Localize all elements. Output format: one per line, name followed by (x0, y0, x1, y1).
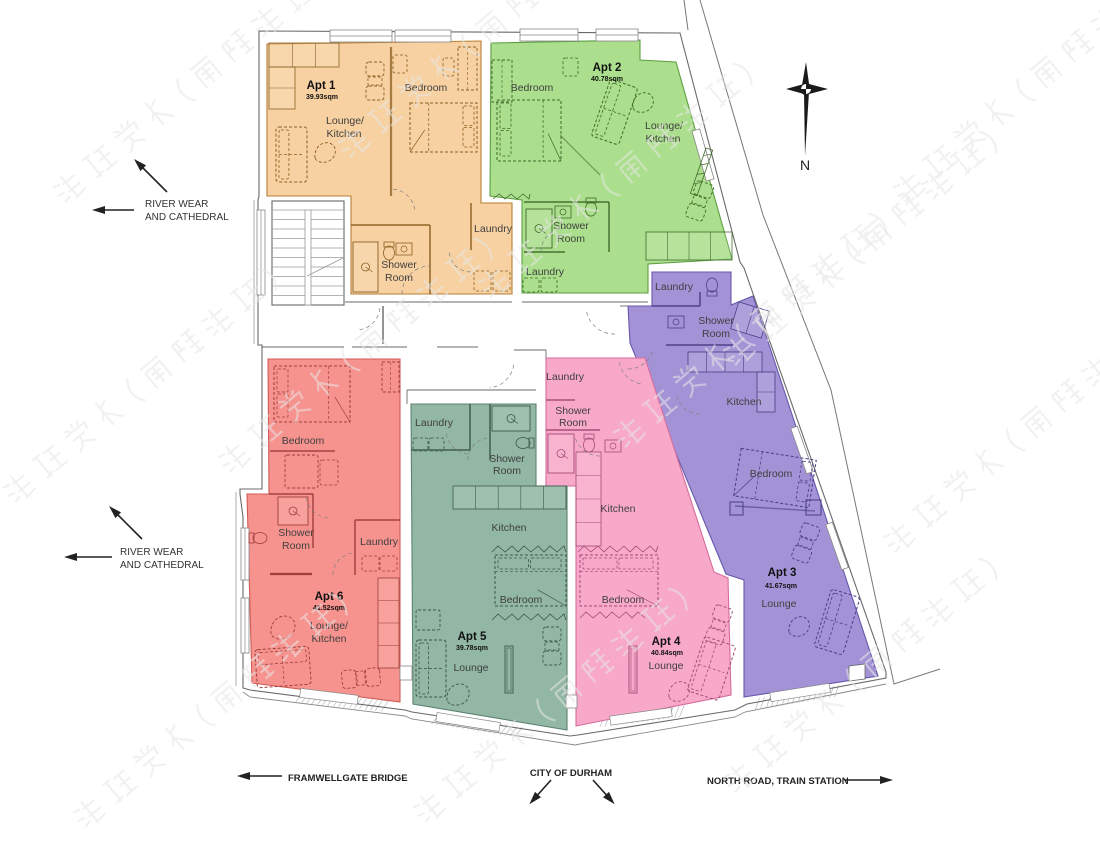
svg-text:Laundry: Laundry (546, 371, 585, 383)
svg-text:Shower: Shower (698, 315, 734, 327)
svg-text:AND CATHEDRAL: AND CATHEDRAL (145, 212, 229, 223)
svg-text:Bedroom: Bedroom (602, 594, 645, 606)
svg-text:Bedroom: Bedroom (511, 82, 554, 94)
svg-text:CITY OF DURHAM: CITY OF DURHAM (530, 768, 612, 779)
svg-text:Bedroom: Bedroom (282, 435, 325, 447)
svg-text:Laundry: Laundry (655, 281, 694, 293)
svg-text:Kitchen: Kitchen (600, 503, 635, 515)
svg-text:Shower: Shower (381, 259, 417, 271)
svg-text:N: N (800, 157, 810, 173)
svg-text:39.93sqm: 39.93sqm (306, 94, 338, 101)
svg-text:Lounge: Lounge (453, 662, 488, 674)
svg-text:RIVER WEAR: RIVER WEAR (145, 199, 208, 210)
svg-text:Laundry: Laundry (526, 266, 565, 278)
svg-text:Laundry: Laundry (415, 417, 454, 429)
svg-text:Room: Room (559, 417, 587, 429)
svg-text:40.78sqm: 40.78sqm (591, 76, 623, 83)
svg-text:Kitchen: Kitchen (726, 396, 761, 408)
svg-text:40.84sqm: 40.84sqm (651, 650, 683, 657)
svg-text:Shower: Shower (489, 453, 525, 465)
svg-text:Room: Room (385, 272, 413, 284)
svg-text:AND CATHEDRAL: AND CATHEDRAL (120, 560, 204, 571)
svg-text:Room: Room (282, 540, 310, 552)
svg-text:Laundry: Laundry (360, 536, 399, 548)
svg-text:Lounge/: Lounge/ (326, 115, 364, 127)
svg-text:FRAMWELLGATE BRIDGE: FRAMWELLGATE BRIDGE (288, 773, 408, 784)
svg-text:Lounge/: Lounge/ (645, 120, 683, 132)
svg-text:Bedroom: Bedroom (750, 468, 793, 480)
svg-text:Apt 3: Apt 3 (768, 567, 797, 579)
svg-text:39.78sqm: 39.78sqm (456, 645, 488, 652)
svg-text:Room: Room (702, 328, 730, 340)
svg-text:RIVER WEAR: RIVER WEAR (120, 547, 183, 558)
svg-text:Room: Room (493, 465, 521, 477)
svg-text:Kitchen: Kitchen (491, 522, 526, 534)
svg-text:Bedroom: Bedroom (500, 594, 543, 606)
svg-text:41.67sqm: 41.67sqm (765, 583, 797, 590)
svg-text:Lounge: Lounge (648, 660, 683, 672)
svg-text:Shower: Shower (553, 220, 589, 232)
svg-text:Shower: Shower (555, 405, 591, 417)
svg-text:Apt 2: Apt 2 (593, 62, 622, 74)
svg-text:Apt 4: Apt 4 (652, 636, 681, 648)
svg-text:Apt 5: Apt 5 (458, 631, 487, 643)
svg-text:Apt 1: Apt 1 (307, 80, 336, 92)
svg-text:Shower: Shower (278, 527, 314, 539)
svg-text:Kitchen: Kitchen (326, 128, 361, 140)
svg-text:Laundry: Laundry (474, 223, 513, 235)
svg-text:Lounge: Lounge (761, 598, 796, 610)
